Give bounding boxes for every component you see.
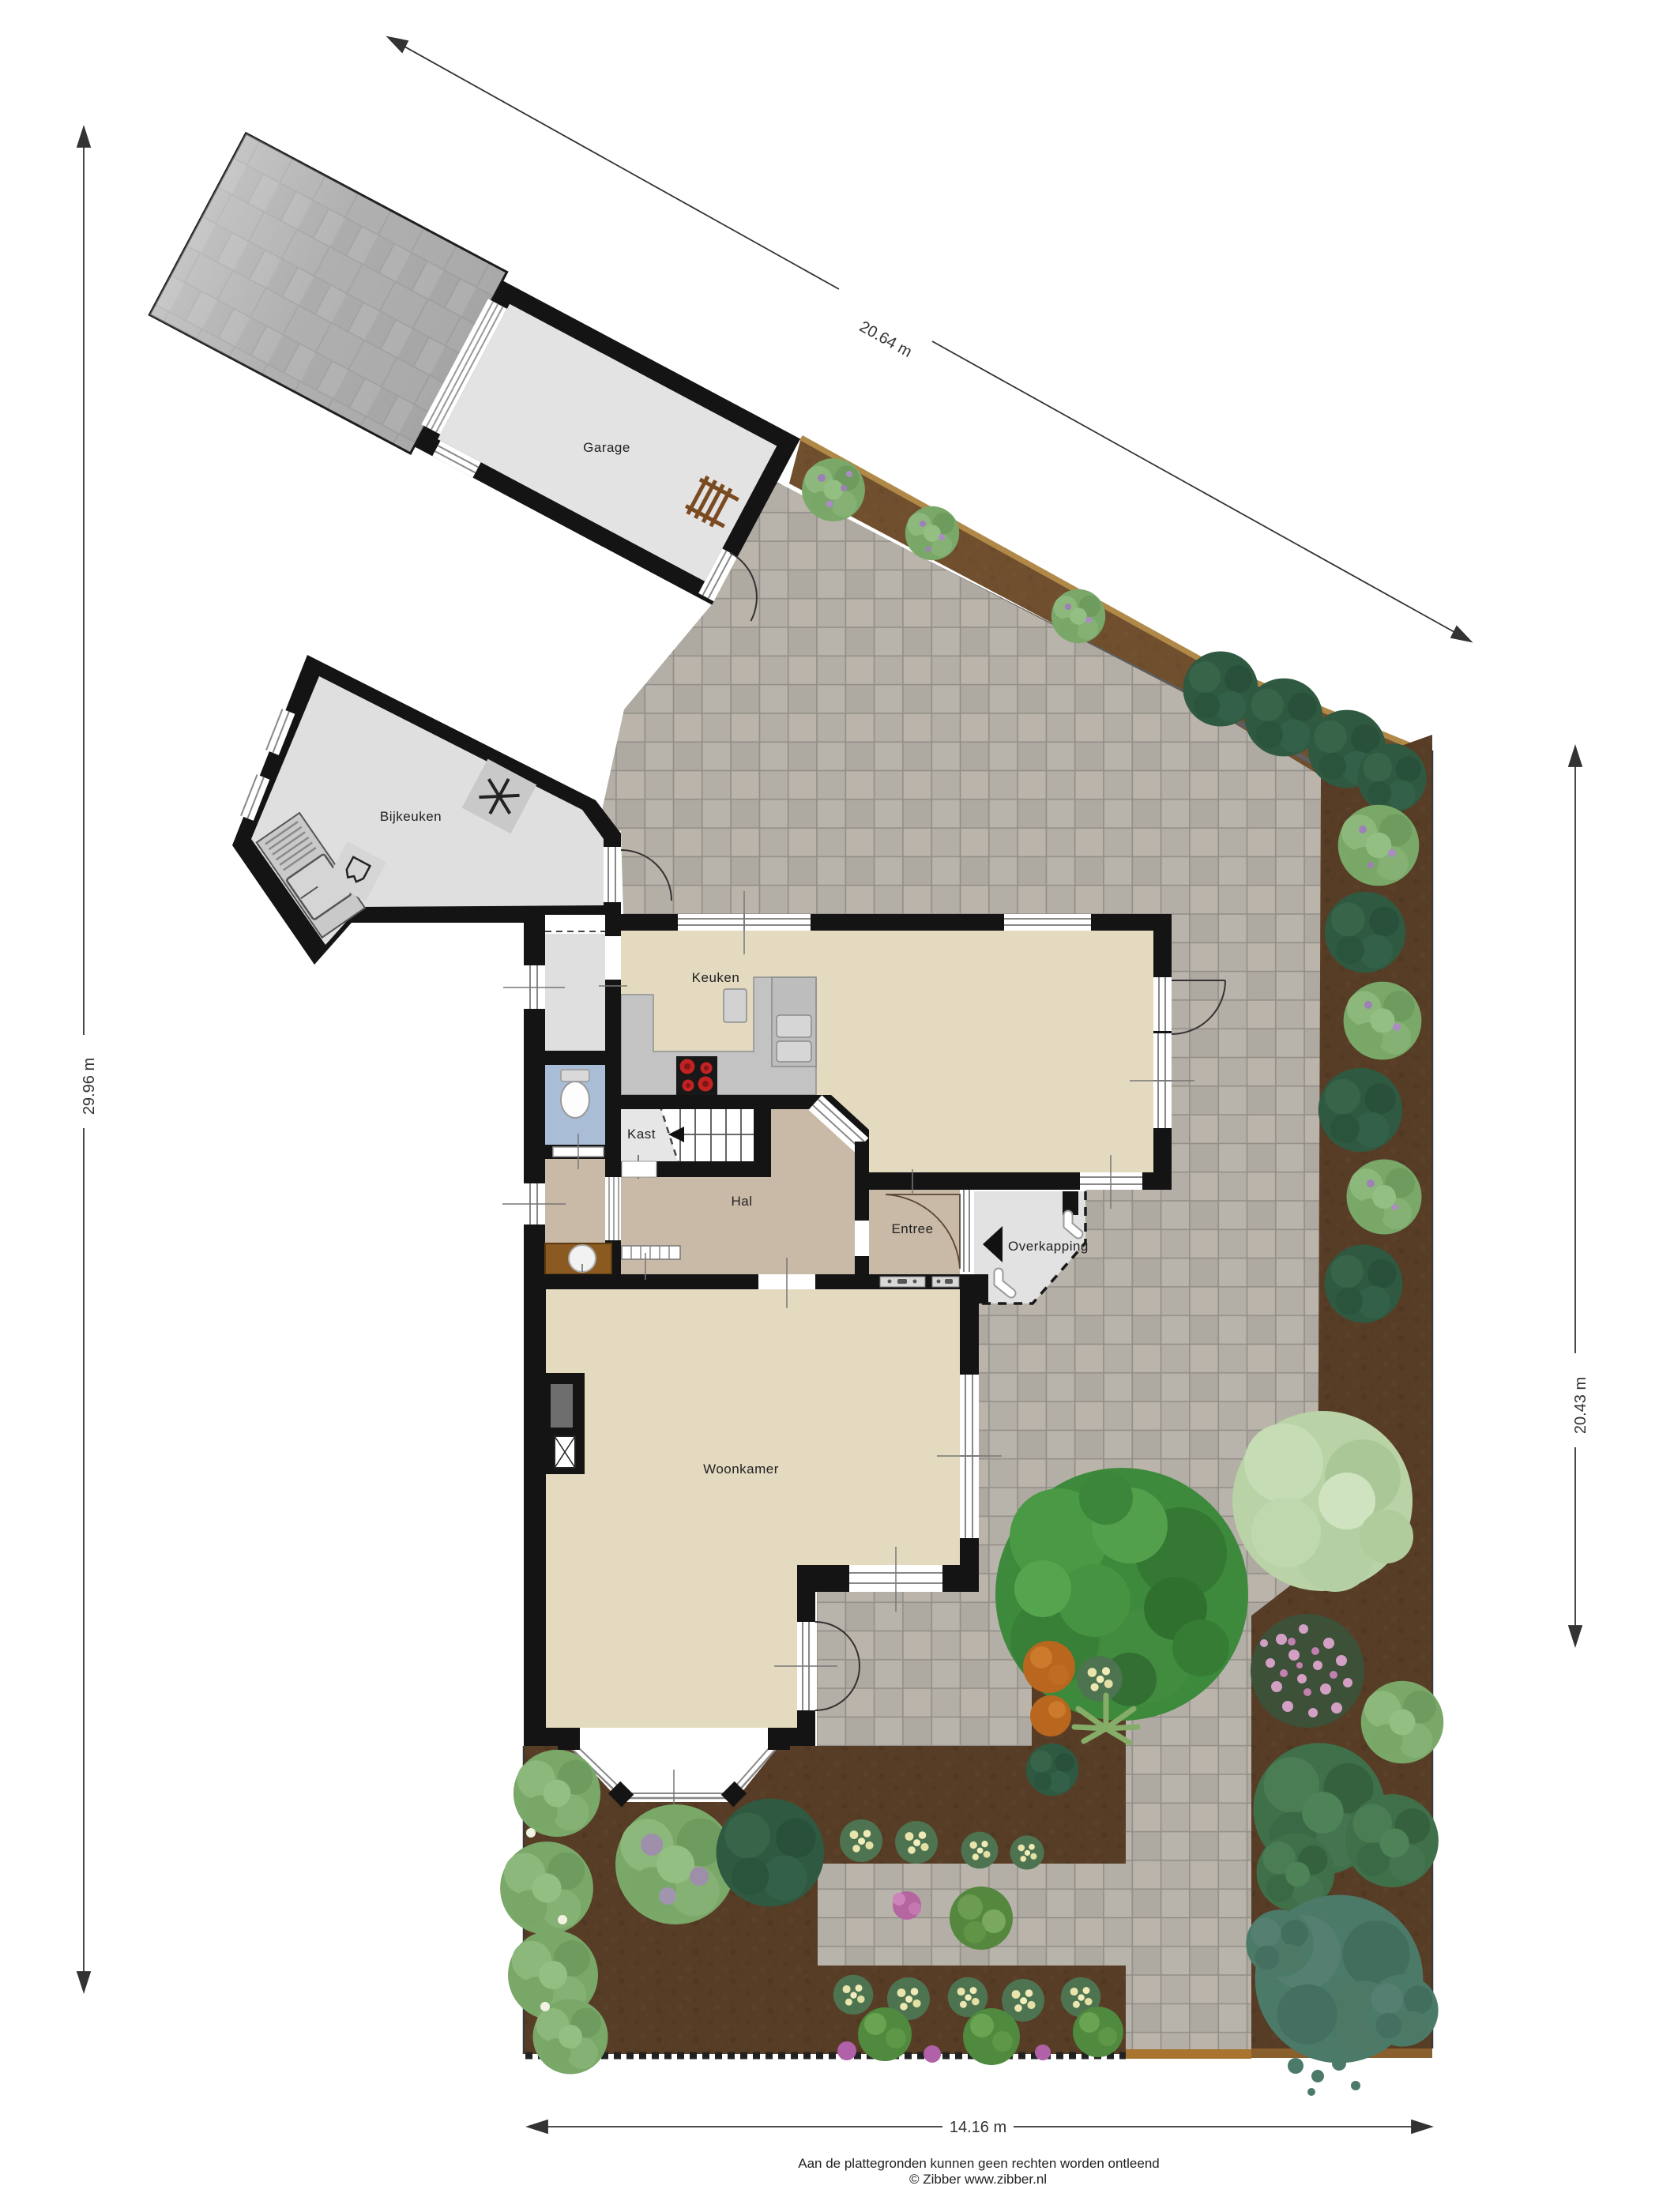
svg-text:20.43 m: 20.43 m	[1572, 1377, 1589, 1434]
svg-text:Hal: Hal	[731, 1194, 752, 1209]
svg-text:Garage: Garage	[583, 440, 630, 455]
svg-text:© Zibber www.zibber.nl: © Zibber www.zibber.nl	[909, 2172, 1047, 2187]
svg-text:Woonkamer: Woonkamer	[703, 1461, 779, 1477]
svg-text:Bijkeuken: Bijkeuken	[380, 809, 442, 824]
svg-text:Entree: Entree	[891, 1221, 933, 1236]
svg-text:29.96 m: 29.96 m	[81, 1058, 98, 1115]
svg-text:Keuken: Keuken	[692, 970, 740, 985]
svg-text:Kast: Kast	[627, 1127, 656, 1142]
svg-text:Overkapping: Overkapping	[1008, 1239, 1089, 1254]
svg-text:Aan de plattegronden kunnen ge: Aan de plattegronden kunnen geen rechten…	[798, 2156, 1159, 2171]
svg-text:14.16 m: 14.16 m	[950, 2119, 1006, 2136]
